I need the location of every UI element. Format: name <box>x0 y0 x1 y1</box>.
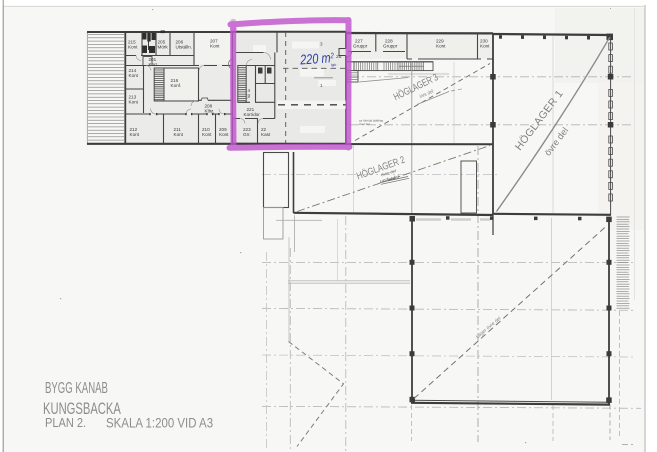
svg-text:Gruppr: Gruppr <box>383 43 398 48</box>
svg-text:Kont: Kont <box>129 100 139 105</box>
svg-text:Korr.: Korr. <box>205 109 215 114</box>
svg-text:Mörk: Mörk <box>158 45 169 50</box>
svg-text:PLAN 2.: PLAN 2. <box>45 415 86 430</box>
svg-text:Kont: Kont <box>202 132 212 137</box>
svg-text:Kont: Kont <box>130 132 140 137</box>
svg-text:BYGG KANAB: BYGG KANAB <box>45 378 108 396</box>
svg-text:Korr.: Korr. <box>149 62 159 67</box>
svg-text:Kast: Kast <box>261 132 271 137</box>
svg-text:Kont: Kont <box>210 44 220 49</box>
svg-text:Kont: Kont <box>174 132 184 137</box>
svg-text:Grr.: Grr. <box>243 132 251 137</box>
svg-text:Kont: Kont <box>129 73 139 78</box>
svg-text:lgh: lgh <box>331 62 337 67</box>
svg-text:Kont: Kont <box>436 43 446 48</box>
svg-text:SKALA 1:200 VID A3: SKALA 1:200 VID A3 <box>106 416 213 431</box>
svg-text:2B: 2B <box>336 54 342 59</box>
svg-text:över del: över del <box>359 122 370 126</box>
svg-text:Konf.: Konf. <box>171 83 182 88</box>
svg-text:Kont: Kont <box>219 132 229 137</box>
svg-text:Kont: Kont <box>128 45 138 50</box>
svg-text:tr: tr <box>248 93 251 98</box>
svg-text:Utställn.: Utställn. <box>176 45 193 50</box>
svg-text:Kont: Kont <box>480 43 490 48</box>
svg-text:Gruppr: Gruppr <box>353 43 368 48</box>
svg-text:Korridor: Korridor <box>244 112 261 117</box>
svg-text:220 m2: 220 m2 <box>299 50 335 68</box>
